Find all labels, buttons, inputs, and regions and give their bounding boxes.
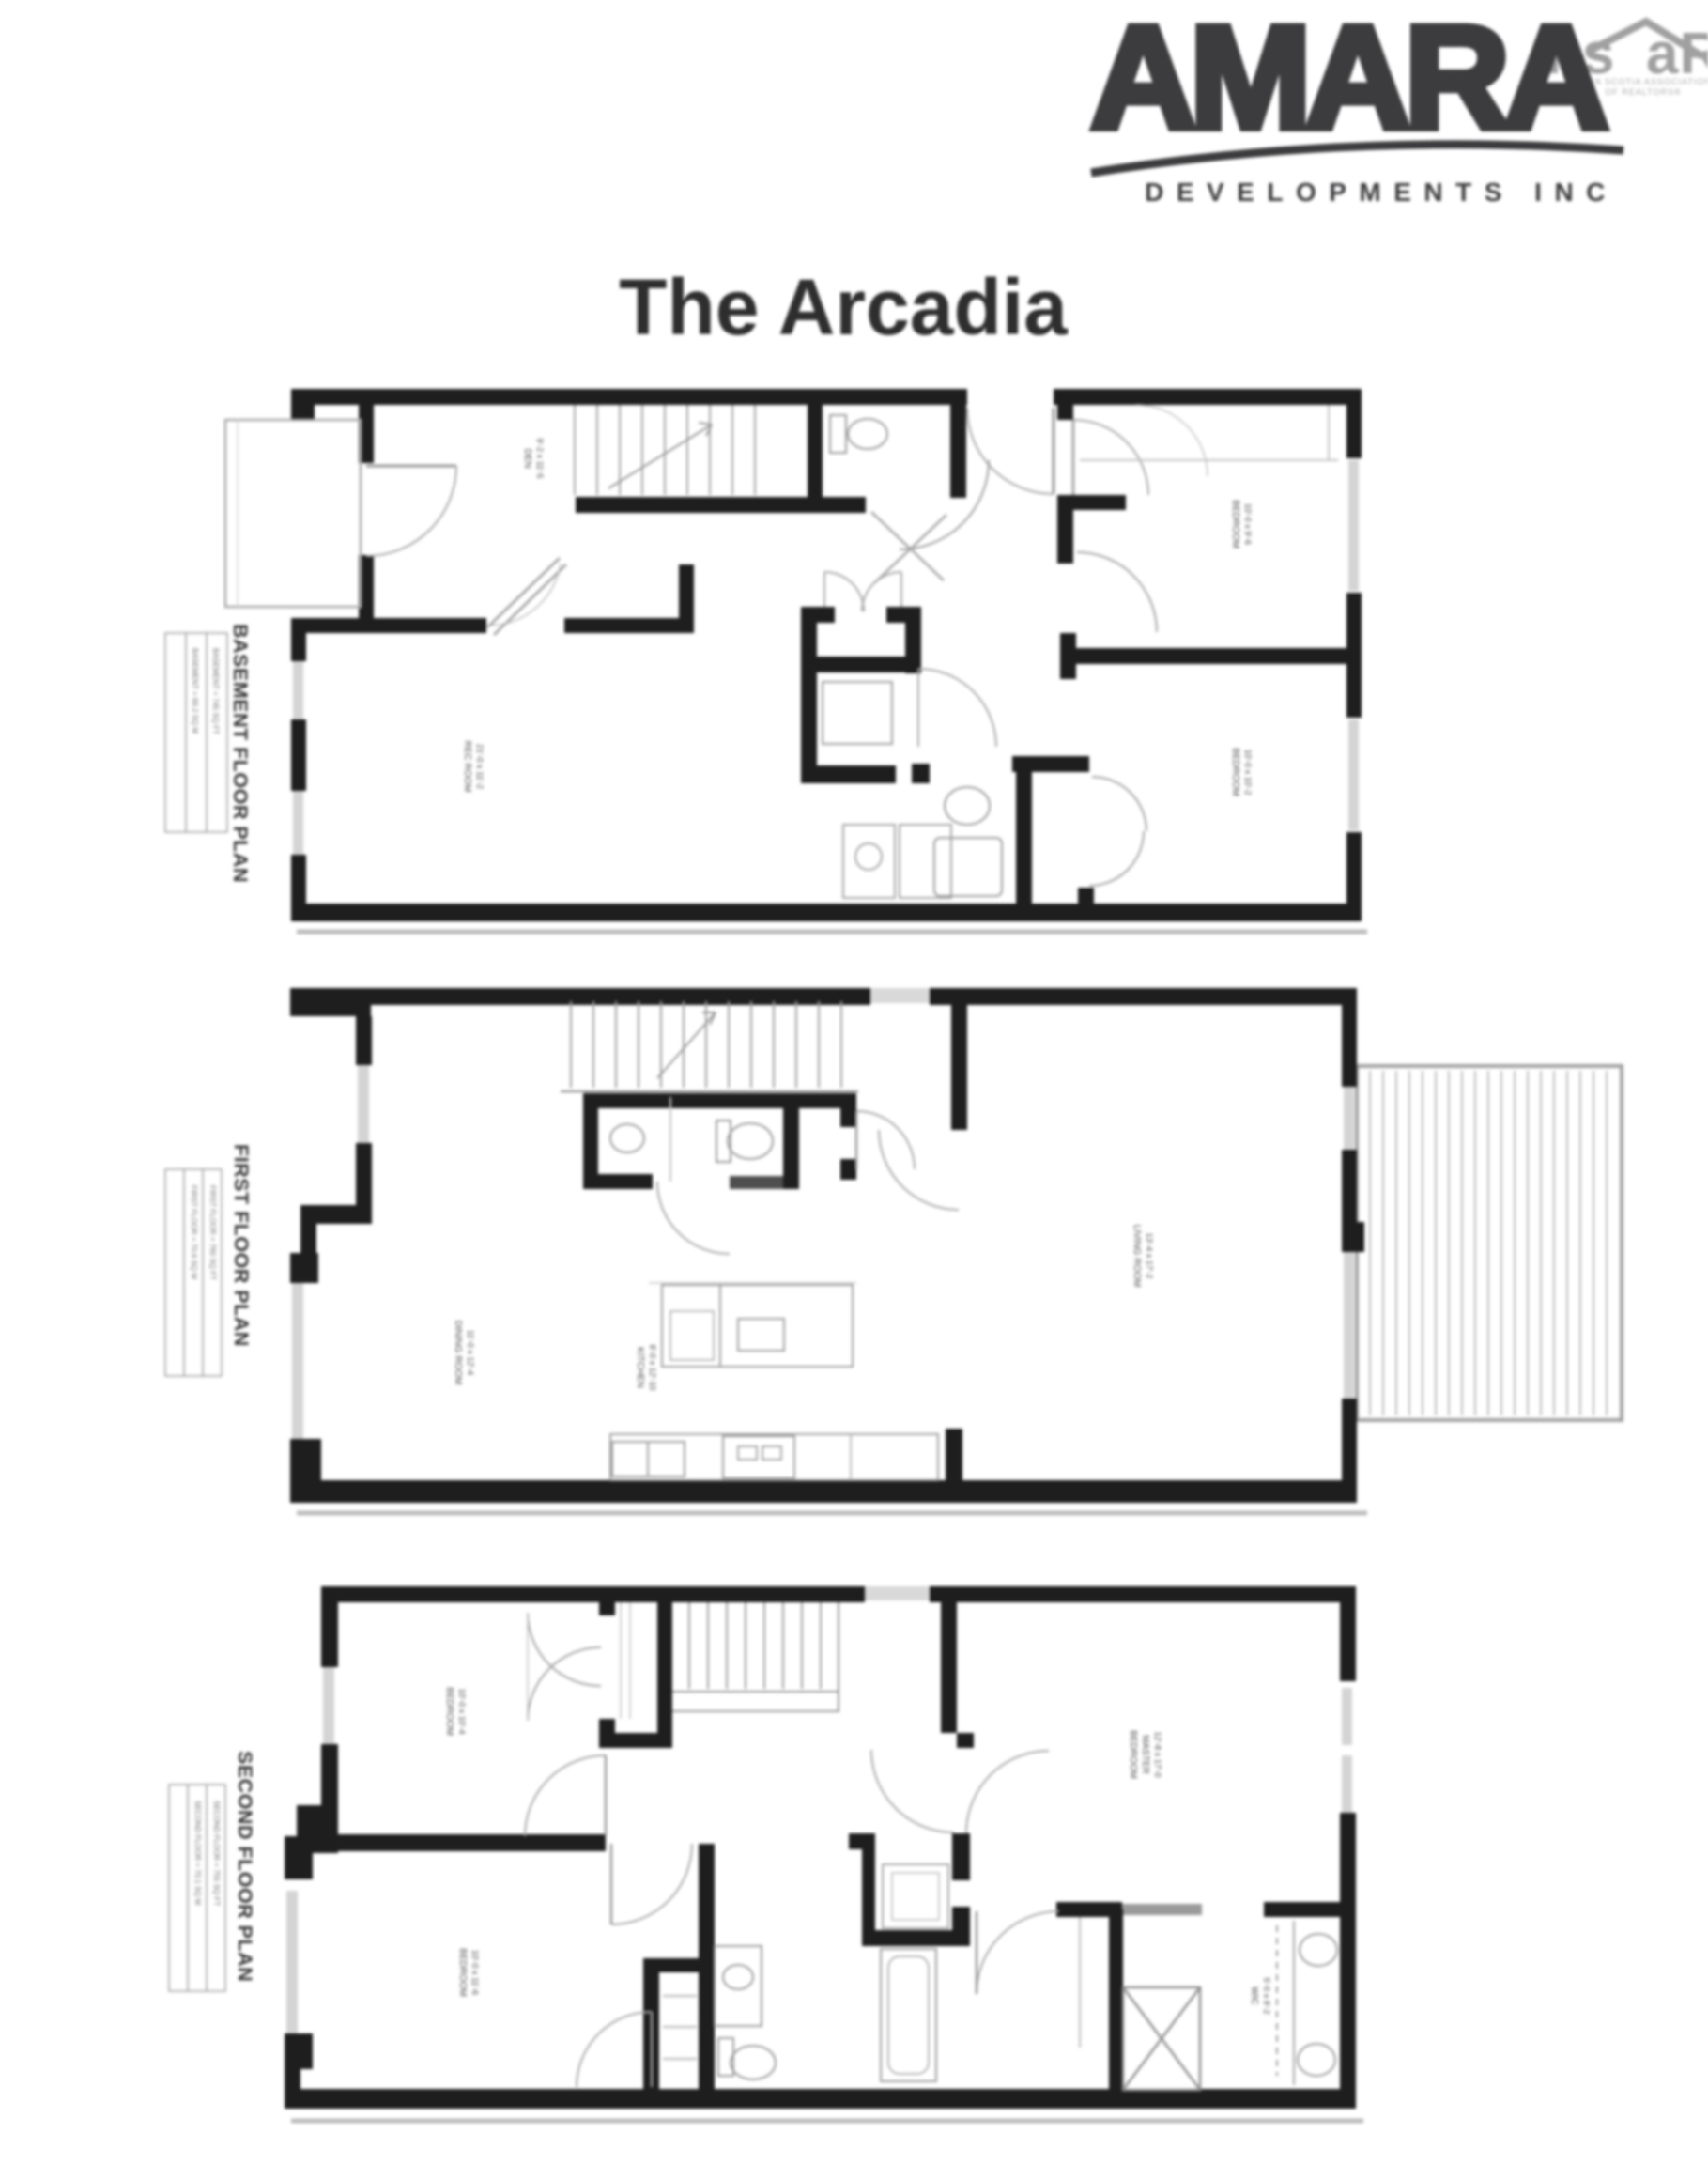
- svg-text:BEDROOM: BEDROOM: [1230, 748, 1240, 796]
- svg-text:5'-0 x 8'-2: 5'-0 x 8'-2: [1262, 1978, 1271, 2015]
- svg-text:BEDROOM: BEDROOM: [444, 1687, 454, 1736]
- svg-text:BEDROOM: BEDROOM: [1128, 1730, 1138, 1779]
- svg-text:OF REALTORS®: OF REALTORS®: [1605, 87, 1681, 97]
- svg-text:MASTER: MASTER: [1140, 1735, 1150, 1774]
- svg-text:WIC: WIC: [1249, 1986, 1259, 2004]
- svg-text:8'-0 x 12'-10: 8'-0 x 12'-10: [648, 1345, 657, 1391]
- svg-text:SECOND FLOOR PLAN: SECOND FLOOR PLAN: [234, 1751, 256, 1982]
- svg-text:AMARA: AMARA: [1090, 0, 1606, 160]
- svg-text:KITCHEN: KITCHEN: [635, 1347, 645, 1388]
- svg-text:FIRST FLOOR = 70.6 SQ M: FIRST FLOOR = 70.6 SQ M: [190, 1185, 198, 1279]
- svg-text:FIRST FLOOR = 760 SQ FT: FIRST FLOOR = 760 SQ FT: [208, 1185, 217, 1280]
- svg-text:10'-0 x 10'-4: 10'-0 x 10'-4: [457, 1689, 467, 1735]
- svg-text:The Arcadia: The Arcadia: [619, 263, 1069, 351]
- svg-text:21'-0 x 11'-2: 21'-0 x 11'-2: [475, 744, 485, 789]
- svg-text:DINING ROOM: DINING ROOM: [453, 1321, 463, 1385]
- svg-text:10'-0 x 9'-6: 10'-0 x 9'-6: [1243, 503, 1253, 545]
- svg-text:BASEMENT = 69.2 SQ M: BASEMENT = 69.2 SQ M: [191, 648, 199, 734]
- svg-text:11'-0 x 12'-4: 11'-0 x 12'-4: [466, 1330, 475, 1375]
- svg-text:BEDROOM: BEDROOM: [1230, 500, 1240, 549]
- svg-text:13'-4 x 17'-2: 13'-4 x 17'-2: [1145, 1233, 1154, 1279]
- svg-text:DEN: DEN: [522, 448, 532, 468]
- svg-text:FIRST FLOOR PLAN: FIRST FLOOR PLAN: [230, 1144, 253, 1347]
- svg-text:REC ROOM: REC ROOM: [462, 741, 472, 793]
- svg-text:SECOND FLOOR = 755 SQ FT: SECOND FLOOR = 755 SQ FT: [212, 1801, 221, 1906]
- svg-text:BEDROOM: BEDROOM: [457, 1948, 468, 1997]
- svg-text:LIVING ROOM: LIVING ROOM: [1131, 1225, 1142, 1288]
- svg-text:BASEMENT FLOOR PLAN: BASEMENT FLOOR PLAN: [229, 624, 252, 883]
- svg-text:BASEMENT = 745 SQ FT: BASEMENT = 745 SQ FT: [211, 648, 220, 734]
- svg-text:SECOND FLOOR = 70.1 SQ M: SECOND FLOOR = 70.1 SQ M: [193, 1801, 202, 1906]
- svg-text:10'-0 x 11'-6: 10'-0 x 11'-6: [470, 1950, 480, 1995]
- svg-text:12'-8 x 17'-0: 12'-8 x 17'-0: [1153, 1732, 1162, 1778]
- svg-text:10'-0 x 10'-2: 10'-0 x 10'-2: [1243, 750, 1253, 796]
- svg-text:DEVELOPMENTS INC: DEVELOPMENTS INC: [1145, 178, 1618, 207]
- svg-text:9'-2 x 11'-5: 9'-2 x 11'-5: [535, 438, 545, 478]
